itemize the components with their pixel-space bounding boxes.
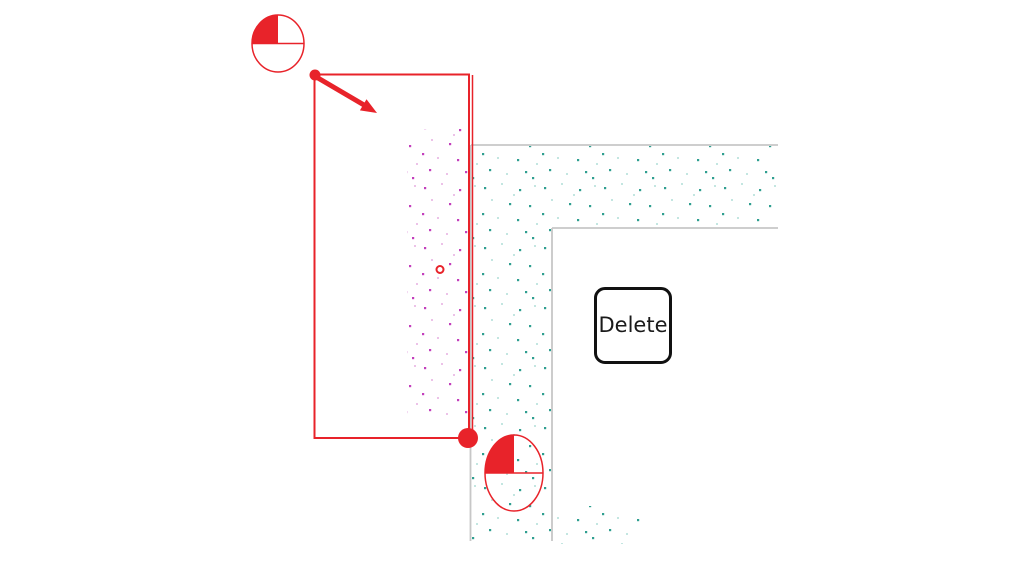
floorplan-drawing (0, 0, 1024, 576)
floorplanner-canvas: Delete (0, 0, 1024, 576)
vertex-handle-end[interactable] (458, 428, 478, 448)
delete-key-label: Delete (599, 315, 668, 336)
delete-key-button[interactable]: Delete (594, 287, 672, 364)
wall-hatch-overflow[interactable] (553, 506, 645, 544)
wall-midpoint-marker[interactable] (437, 266, 444, 273)
click-indicator-top-icon (252, 15, 304, 72)
vertex-handle-start[interactable] (310, 70, 321, 81)
drag-arrow-icon (318, 78, 377, 113)
